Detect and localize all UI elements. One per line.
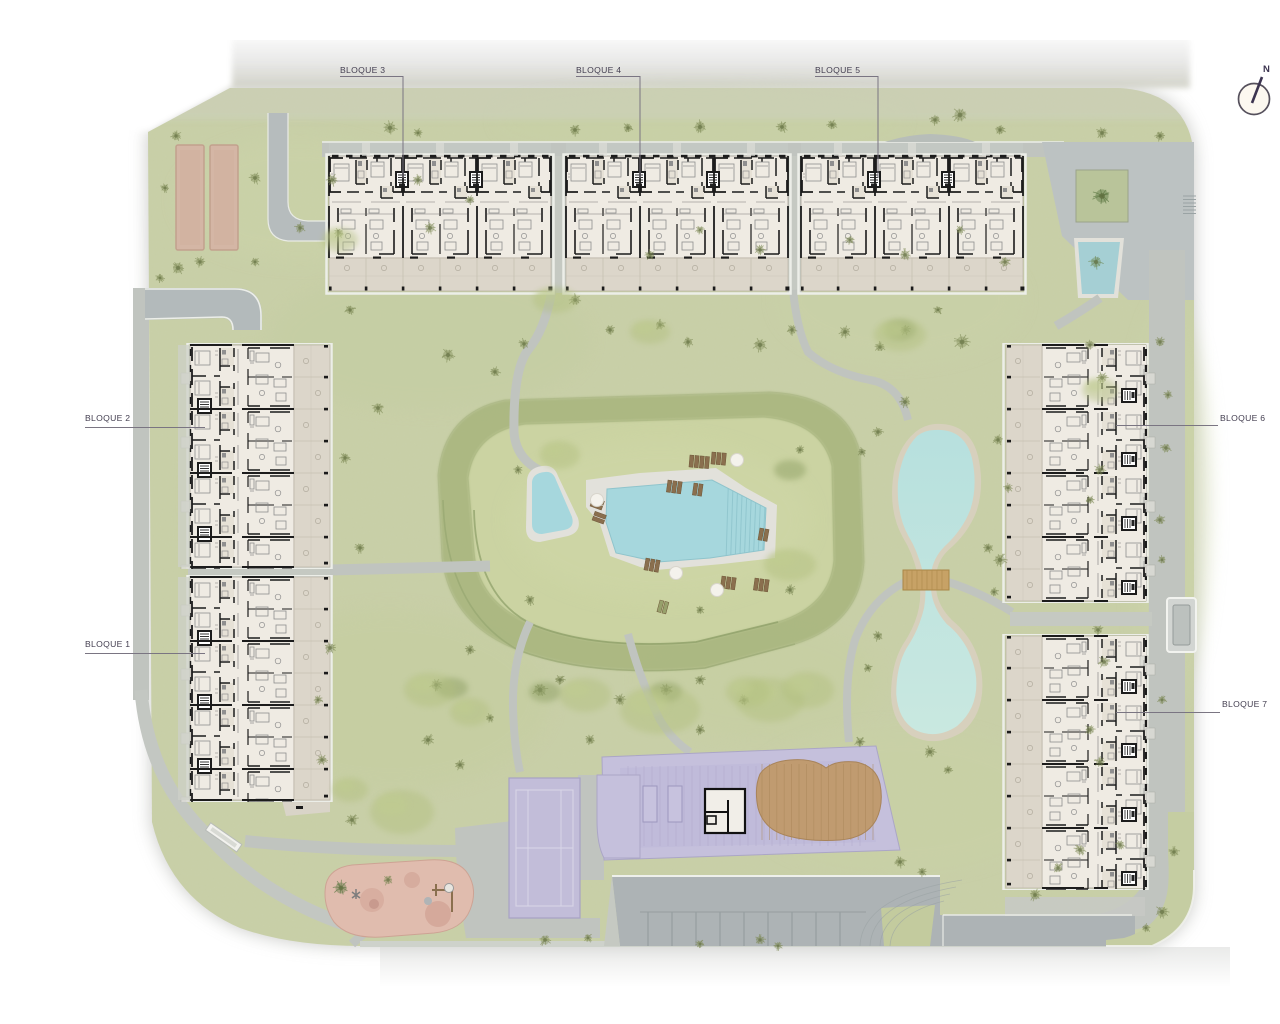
svg-text:BLOQUE 4: BLOQUE 4: [576, 65, 621, 75]
svg-text:BLOQUE 6: BLOQUE 6: [1220, 413, 1265, 423]
svg-text:BLOQUE 5: BLOQUE 5: [815, 65, 860, 75]
svg-text:N: N: [1263, 64, 1270, 75]
svg-text:BLOQUE 1: BLOQUE 1: [85, 639, 130, 649]
svg-text:BLOQUE 2: BLOQUE 2: [85, 413, 130, 423]
svg-text:BLOQUE 7: BLOQUE 7: [1222, 699, 1267, 709]
svg-text:BLOQUE 3: BLOQUE 3: [340, 65, 385, 75]
